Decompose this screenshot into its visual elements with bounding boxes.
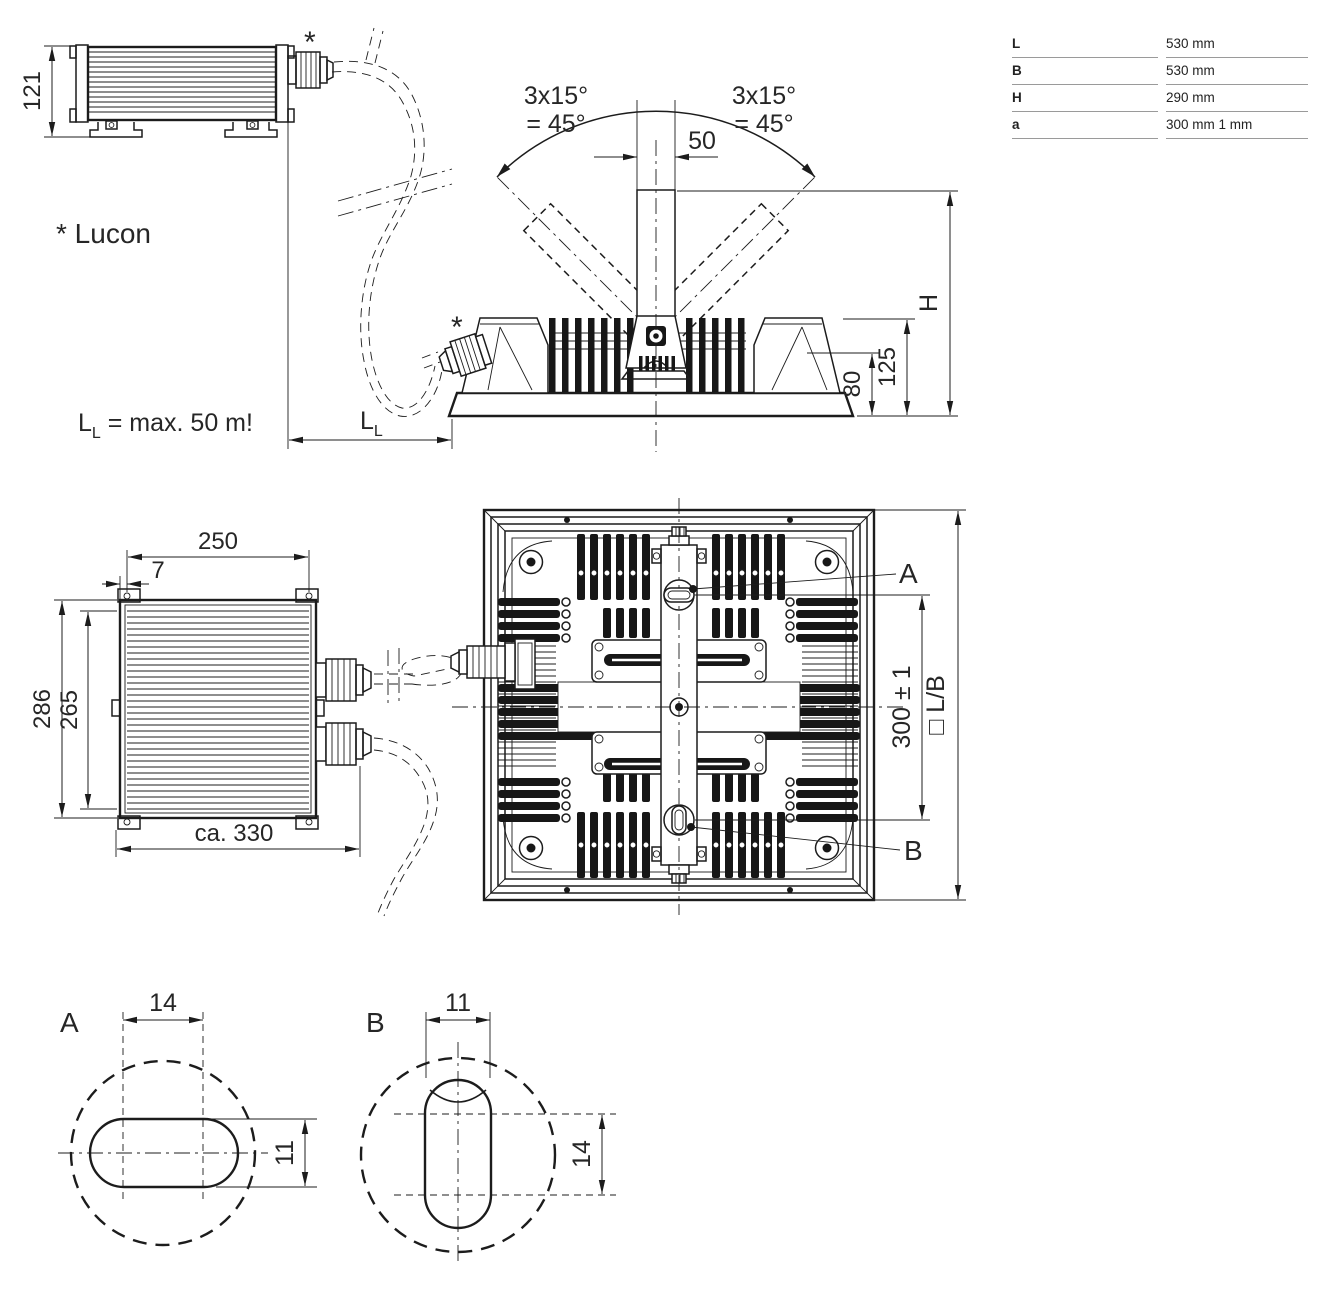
luminaire-gland-asterisk: * <box>451 311 463 344</box>
cable-break-mark <box>338 184 452 216</box>
spec-value: 530 mm <box>1166 57 1308 85</box>
angle-right-2: = 45° <box>734 110 793 138</box>
driver-top-gland-2 <box>316 723 371 765</box>
cable-max-note: LL = max. 50 m! <box>78 409 253 442</box>
spec-key: L <box>1012 30 1158 58</box>
detail-b-label: B <box>366 1007 385 1038</box>
detail-a-height: 11 <box>271 1140 299 1166</box>
detail-a-width: 14 <box>149 989 177 1017</box>
detail-b-width: 11 <box>445 989 471 1017</box>
dim-cable-length: LL <box>360 407 383 440</box>
driver-box-side-view: * 121 <box>19 26 333 137</box>
drawing-canvas: * 121 * Lucon <box>0 0 1332 1289</box>
dim-driver-outer: 286 <box>29 689 56 729</box>
luminaire-top-gland <box>451 639 535 689</box>
angle-left-2: = 45° <box>526 110 585 138</box>
spec-value: 530 mm <box>1166 30 1308 58</box>
luminaire-top-view: A B 300 ± 1 □ L/B <box>451 498 966 915</box>
dim-height-H: H <box>915 294 943 312</box>
table-row: a 300 mm 1 mm <box>1012 111 1308 138</box>
angle-left-1: 3x15° <box>524 82 588 110</box>
cable-run-side <box>332 28 452 416</box>
dim-driver-height: 121 <box>19 71 46 111</box>
detail-a: A 14 11 <box>58 989 317 1245</box>
dim-driver-inner: 265 <box>56 690 83 730</box>
driver-gland-asterisk: * <box>304 26 316 59</box>
technical-drawing-page: * 121 * Lucon <box>0 0 1332 1289</box>
dim-bracket-width: 50 <box>688 127 716 155</box>
spec-key: H <box>1012 84 1158 112</box>
driver-box-top-view: 7 250 286 265 ca. 330 <box>29 528 371 857</box>
spec-value: 300 mm 1 mm <box>1166 111 1308 139</box>
dim-foot-offset: 7 <box>151 557 164 584</box>
spec-key: a <box>1012 111 1158 139</box>
luminaire-base <box>449 393 853 416</box>
cable-length-dimension: LL <box>288 122 452 449</box>
table-row: B 530 mm <box>1012 57 1308 84</box>
lucon-note: * Lucon <box>56 218 151 249</box>
cable-run-top-view <box>374 648 462 916</box>
spec-key: B <box>1012 57 1158 85</box>
table-row: L 530 mm <box>1012 30 1308 57</box>
hole-b-label: B <box>904 835 923 866</box>
dim-hole-spacing: 300 ± 1 <box>888 665 916 748</box>
dim-125: 125 <box>874 347 901 387</box>
angle-right-1: 3x15° <box>732 82 796 110</box>
dim-80: 80 <box>839 371 866 398</box>
detail-a-label: A <box>60 1007 79 1038</box>
driver-top-gland-1 <box>316 659 371 701</box>
spec-value: 290 mm <box>1166 84 1308 112</box>
detail-b: B 11 14 <box>361 989 616 1266</box>
spec-table: L 530 mm B 530 mm H 290 mm a 300 mm 1 mm <box>1012 30 1308 138</box>
table-row: H 290 mm <box>1012 84 1308 111</box>
dim-driver-total: ca. 330 <box>195 820 274 847</box>
hole-a-label: A <box>899 558 918 589</box>
dim-driver-width: 250 <box>198 528 238 555</box>
detail-b-height: 14 <box>568 1140 596 1168</box>
dim-square-outline: □ L/B <box>922 675 950 735</box>
luminaire-side-view: * 50 3x15° = 45° 3x15° = 45° H 125 80 <box>422 82 958 452</box>
